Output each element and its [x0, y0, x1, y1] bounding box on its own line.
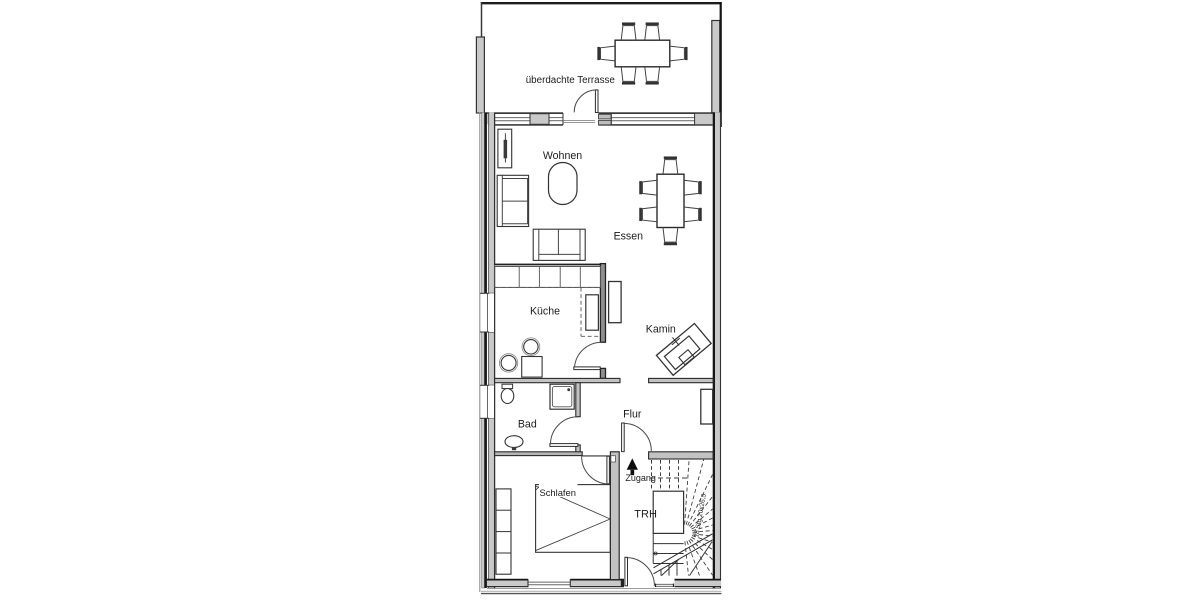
svg-text:überdachte Terrasse: überdachte Terrasse [526, 75, 616, 86]
svg-text:TRH: TRH [634, 508, 657, 520]
svg-text:Küche: Küche [530, 305, 560, 317]
svg-text:Wohnen: Wohnen [543, 150, 582, 162]
svg-text:Bad: Bad [518, 419, 537, 431]
svg-text:Flur: Flur [623, 409, 642, 421]
svg-text:Kamin: Kamin [646, 323, 676, 335]
svg-text:Schlafen: Schlafen [539, 487, 575, 498]
svg-text:Essen: Essen [614, 231, 644, 243]
